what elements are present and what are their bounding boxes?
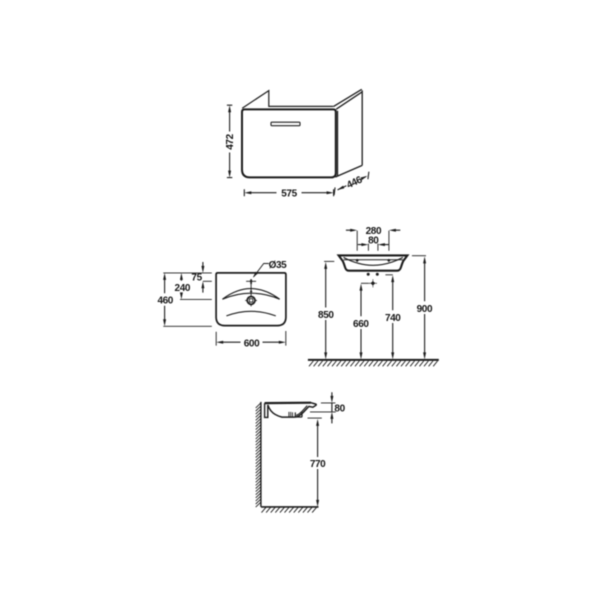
svg-text:600: 600	[244, 338, 260, 349]
svg-text:740: 740	[385, 313, 401, 324]
svg-text:900: 900	[417, 304, 433, 315]
svg-text:770: 770	[310, 459, 326, 470]
svg-text:850: 850	[318, 310, 334, 321]
svg-text:660: 660	[353, 319, 369, 330]
svg-text:240: 240	[175, 283, 191, 294]
svg-text:75: 75	[191, 272, 202, 283]
svg-text:80: 80	[368, 236, 379, 247]
svg-text:446: 446	[345, 174, 364, 191]
svg-text:472: 472	[225, 133, 236, 149]
svg-text:Ø35: Ø35	[269, 260, 288, 271]
svg-text:575: 575	[281, 189, 297, 200]
svg-text:460: 460	[157, 295, 173, 306]
svg-text:80: 80	[334, 404, 345, 415]
